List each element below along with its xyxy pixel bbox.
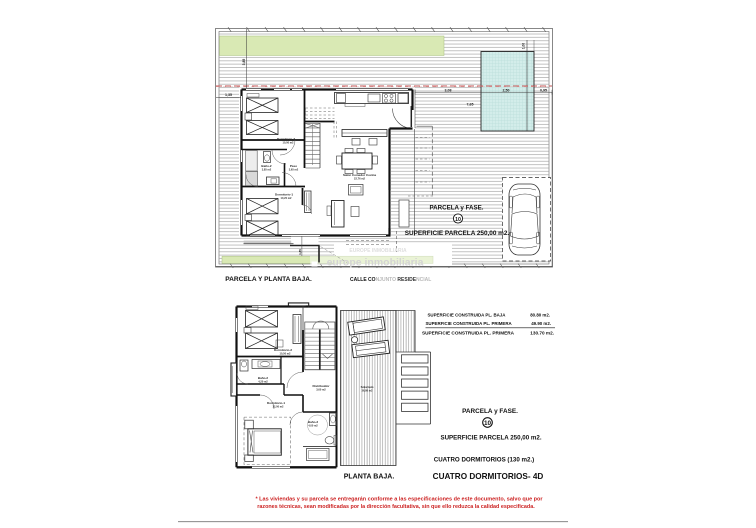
- svg-text:7,65: 7,65: [467, 103, 474, 107]
- svg-text:SUPERFICIE PARCELA 250,00 m2.: SUPERFICIE PARCELA 250,00 m2.: [405, 230, 510, 237]
- svg-text:80.80 m2.: 80.80 m2.: [530, 313, 550, 318]
- svg-text:130.70 m2.: 130.70 m2.: [530, 331, 554, 336]
- svg-text:3,60 m2: 3,60 m2: [316, 387, 326, 391]
- svg-text:Baño-2: Baño-2: [258, 376, 268, 380]
- svg-text:PARCELA Y PLANTA BAJA.: PARCELA Y PLANTA BAJA.: [225, 276, 312, 283]
- svg-text:PARCELA y FASE.: PARCELA y FASE.: [462, 408, 518, 415]
- svg-text:europe inmobiliaria: europe inmobiliaria: [327, 257, 424, 269]
- svg-text:0,95: 0,95: [540, 88, 547, 92]
- svg-text:* Las viviendas y su parcela s: * Las viviendas y su parcela se entregar…: [255, 497, 543, 503]
- svg-text:10: 10: [455, 217, 461, 223]
- svg-text:10,20 m2: 10,20 m2: [281, 196, 293, 200]
- svg-text:36,80 m2: 36,80 m2: [362, 388, 374, 392]
- svg-text:Salon Comedor Cocina: Salon Comedor Cocina: [343, 173, 376, 177]
- svg-text:PARCELA y FASE.: PARCELA y FASE.: [430, 205, 484, 212]
- svg-text:1,35: 1,35: [225, 93, 232, 97]
- svg-text:Distribuidor: Distribuidor: [313, 384, 331, 388]
- svg-text:12,00 m2: 12,00 m2: [273, 404, 285, 408]
- svg-text:Solarium: Solarium: [361, 385, 374, 389]
- svg-text:PLANTA BAJA.: PLANTA BAJA.: [344, 474, 395, 481]
- svg-text:CUATRO DORMITORIOS- 4D: CUATRO DORMITORIOS- 4D: [433, 472, 544, 481]
- svg-text:Dormitorio-2: Dormitorio-2: [274, 348, 292, 352]
- svg-text:3,08: 3,08: [445, 88, 452, 92]
- svg-text:Dormitorio-1: Dormitorio-1: [275, 193, 293, 197]
- svg-text:1,85: 1,85: [298, 249, 302, 255]
- svg-text:CALLE CONJUNTO RESIDENCIAL: CALLE CONJUNTO RESIDENCIAL: [350, 277, 431, 283]
- svg-text:EUROPE INMOBILIARIA: EUROPE INMOBILIARIA: [349, 248, 407, 254]
- svg-text:Dormitorio-1: Dormitorio-1: [267, 401, 285, 405]
- svg-text:49.90 m2.: 49.90 m2.: [531, 321, 551, 326]
- svg-text:SUPERFICIE CONSTRUIDA PL. BAJA: SUPERFICIE CONSTRUIDA PL. BAJA: [428, 313, 507, 318]
- svg-text:4,00 m2: 4,00 m2: [308, 423, 318, 427]
- svg-text:10: 10: [484, 420, 492, 427]
- svg-text:1,00: 1,00: [522, 43, 526, 49]
- svg-text:3,65 m2: 3,65 m2: [289, 167, 299, 171]
- svg-text:3,85 m2: 3,85 m2: [262, 167, 272, 171]
- svg-text:SUPERFICIE CONSTRUIDA PL. PRIM: SUPERFICIE CONSTRUIDA PL. PRIMERA: [426, 321, 513, 326]
- svg-text:CUATRO DORMITORIOS (130 m2.): CUATRO DORMITORIOS (130 m2.): [434, 457, 535, 464]
- svg-text:10,50 m2: 10,50 m2: [280, 351, 292, 355]
- svg-text:Baño-2: Baño-2: [261, 164, 271, 168]
- svg-text:3,85: 3,85: [242, 59, 246, 66]
- svg-text:2,50: 2,50: [503, 88, 510, 92]
- svg-text:SUPERFICIE PARCELA 250,00 m2.: SUPERFICIE PARCELA 250,00 m2.: [440, 435, 541, 442]
- svg-text:22,76 m2: 22,76 m2: [354, 176, 366, 180]
- svg-text:Dormitorio-3: Dormitorio-3: [277, 137, 295, 141]
- svg-text:SUPERFICIE CONSTRUIDA PL. PRIM: SUPERFICIE CONSTRUIDA PL. PRIMERA: [422, 331, 515, 336]
- svg-text:10,00 m2: 10,00 m2: [283, 141, 295, 145]
- svg-text:Baño-3: Baño-3: [308, 420, 318, 424]
- svg-text:razones técnicas, sean modific: razones técnicas, sean modificadas por l…: [257, 504, 535, 510]
- svg-text:4,20 m2: 4,20 m2: [258, 379, 268, 383]
- svg-text:Paso: Paso: [290, 164, 297, 168]
